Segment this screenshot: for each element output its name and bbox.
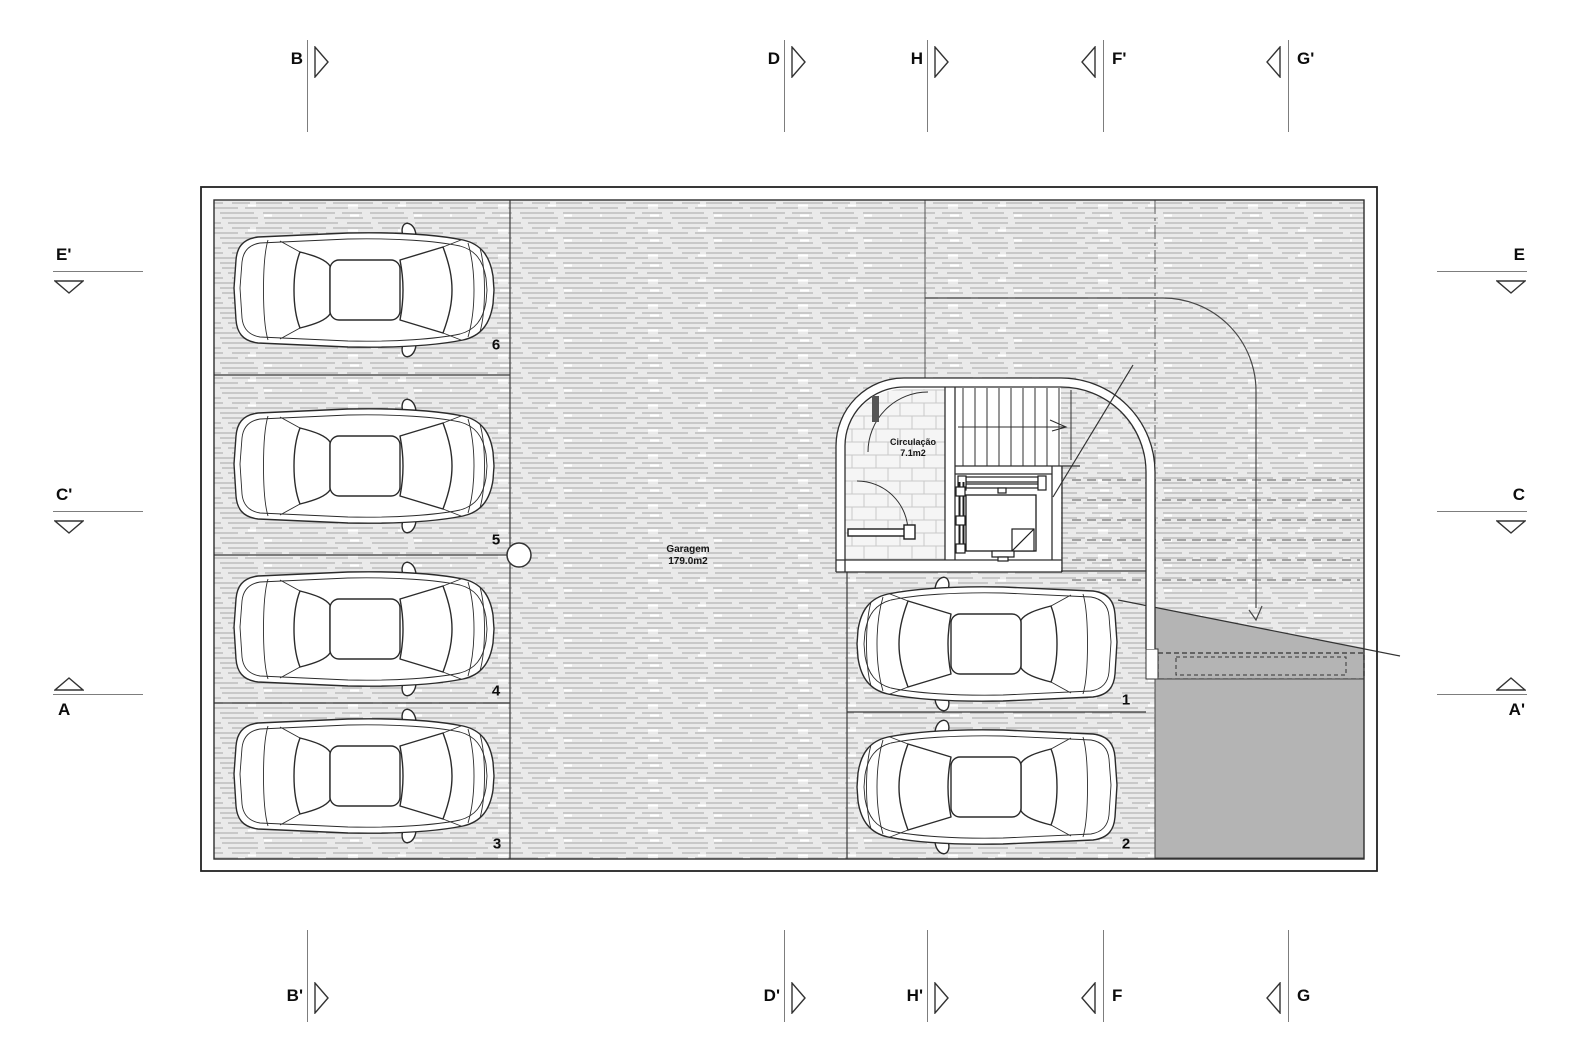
section-arrow-right-icon [791,46,807,78]
section-arrow-left-icon [1080,982,1096,1014]
section-line-d [784,40,785,132]
parking-space-number-1: 1 [1122,692,1130,709]
section-arrow-right-icon [934,46,950,78]
door-leaf-top [872,396,879,422]
section-line-a [53,694,143,695]
section-label-f: F [1112,986,1122,1006]
floor-plan-page: Garagem 179.0m2 Circulação 7.1m2 1 2 3 4… [0,0,1572,1058]
section-label-b: B [277,49,303,69]
car-top-view-space-3 [234,707,494,844]
plan-drawing [0,0,1572,1058]
section-line-f-prime [1103,40,1104,132]
section-arrow-right-icon [791,982,807,1014]
ramp-notch [1146,649,1158,679]
section-arrow-left-icon [1265,46,1281,78]
car-top-view-space-2 [857,718,1117,855]
ramp-slab [1155,679,1364,858]
section-line-g [1288,930,1289,1022]
door-leaf-bottom [848,529,906,536]
section-label-d-prime: D' [748,986,780,1006]
section-arrow-up-icon [1496,676,1526,691]
section-arrow-left-icon [1080,46,1096,78]
section-label-a-prime: A' [1467,700,1525,720]
garage-room-label: Garagem 179.0m2 [636,544,740,568]
section-line-a-prime [1437,694,1527,695]
section-line-h-prime [927,930,928,1022]
section-line-c-prime [53,511,143,512]
section-line-b [307,40,308,132]
section-line-e [1437,271,1527,272]
parking-space-number-2: 2 [1122,836,1130,853]
car-top-view-space-4 [234,560,494,697]
section-label-e-prime: E' [56,245,71,265]
circulation-room-name: Circulação [861,437,965,448]
section-label-g: G [1297,986,1310,1006]
section-label-a: A [58,700,70,720]
parking-space-number-4: 4 [492,683,500,700]
car-top-view-space-5 [234,397,494,534]
section-line-f [1103,930,1104,1022]
section-line-c [1437,511,1527,512]
section-line-b-prime [307,930,308,1022]
section-label-b-prime: B' [271,986,303,1006]
parking-space-number-3: 3 [493,836,501,853]
section-line-h [927,40,928,132]
section-label-c-prime: C' [56,485,72,505]
section-line-d-prime [784,930,785,1022]
section-arrow-right-icon [934,982,950,1014]
section-arrow-right-icon [314,46,330,78]
car-top-view-space-1 [857,575,1117,712]
section-arrow-left-icon [1265,982,1281,1014]
section-label-c: C [1467,485,1525,505]
core-right-wall [1146,472,1155,649]
column-circle [507,543,531,567]
garage-room-area: 179.0m2 [636,556,740,568]
section-line-g-prime [1288,40,1289,132]
car-top-view-space-6 [234,221,494,358]
circulation-room-label: Circulação 7.1m2 [861,437,965,459]
section-arrow-down-icon [54,280,84,295]
section-label-f-prime: F' [1112,49,1126,69]
door-jamb [904,525,915,539]
section-arrow-down-icon [1496,520,1526,535]
section-arrow-down-icon [1496,280,1526,295]
section-label-d: D [754,49,780,69]
parking-space-number-5: 5 [492,532,500,549]
garage-room-name: Garagem [636,544,740,556]
section-line-e-prime [53,271,143,272]
section-arrow-right-icon [314,982,330,1014]
circulation-room-area: 7.1m2 [861,448,965,459]
section-label-e: E [1467,245,1525,265]
section-label-h: H [897,49,923,69]
parking-space-number-6: 6 [492,337,500,354]
section-arrow-down-icon [54,520,84,535]
section-arrow-up-icon [54,676,84,691]
section-label-h-prime: H' [891,986,923,1006]
section-label-g-prime: G' [1297,49,1314,69]
